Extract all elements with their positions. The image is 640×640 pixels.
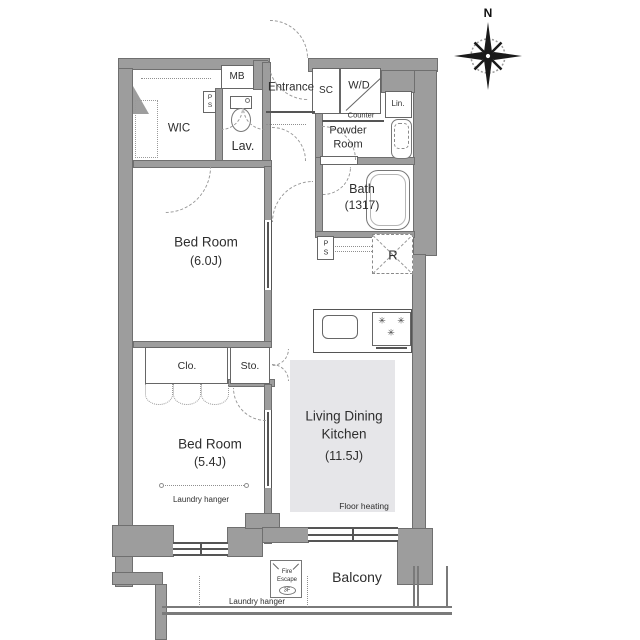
ldk-label: Kitchen — [321, 427, 366, 441]
washer-dryer-label: W/D — [348, 81, 369, 92]
wall — [227, 527, 263, 557]
stove-burner-icon: ✳ — [387, 329, 395, 338]
fire-escape-floor: 3F — [284, 588, 290, 594]
bath-label: Bath — [349, 183, 375, 196]
wall — [412, 254, 426, 530]
laundry-hanger-line — [162, 485, 248, 488]
wall — [413, 70, 437, 256]
balcony-slab-line — [162, 612, 452, 615]
accordion-door-arc — [201, 384, 229, 405]
pipe-shaft-letter: S — [208, 103, 212, 110]
wall — [381, 70, 415, 93]
bedroom2-label: Bed Room — [178, 437, 242, 451]
sliding-door-line — [267, 222, 269, 288]
wall — [397, 528, 433, 585]
counter-edge-line — [322, 120, 384, 122]
wic-label: WIC — [168, 123, 190, 135]
entry-door-arc — [270, 20, 308, 58]
storage-label: Sto. — [241, 361, 260, 372]
pipe-shaft-letter: P — [208, 95, 212, 102]
fire-escape-label: Fire — [282, 569, 292, 575]
pipe-shaft-lower: P S — [317, 236, 334, 260]
floor-heating-label: Floor heating — [339, 502, 389, 511]
accordion-door-arc — [173, 384, 201, 405]
compass-point-west — [454, 52, 488, 60]
compass-center — [485, 53, 490, 58]
balcony-label: Balcony — [332, 570, 382, 584]
counter-label: Counter — [348, 111, 375, 119]
pipe-shaft-upper: P S — [203, 91, 216, 113]
refrigerator-label: R — [388, 249, 397, 262]
entrance-step-line — [266, 111, 315, 113]
wic-closet-strip — [135, 100, 158, 158]
compass-north-letter: N — [484, 6, 493, 20]
bedroom1-size-label: (6.0J) — [190, 255, 222, 268]
stove-burner-icon: ✳ — [378, 317, 386, 326]
shoe-closet-label: SC — [319, 86, 333, 96]
stove-grill-line — [376, 347, 407, 349]
ldk-door-arc — [272, 181, 313, 222]
bedroom2-size-label: (5.4J) — [194, 456, 226, 469]
wall — [262, 527, 309, 543]
powder-room-label: Powder — [329, 126, 366, 137]
compass: N — [452, 4, 524, 94]
hatch-corner-tick — [273, 563, 279, 569]
laundry-hanger-pole — [307, 576, 308, 607]
compass-point-east — [488, 52, 522, 60]
hall-boundary-line — [266, 124, 306, 126]
fire-escape-hatch: Fire Escape 3F — [270, 560, 302, 598]
pipe-shaft-letter: P — [324, 241, 329, 248]
lavatory-door-arc — [272, 127, 306, 161]
balcony-partition-line — [413, 566, 415, 608]
entry-door-arc — [268, 60, 308, 100]
storage-door-arc — [272, 364, 289, 381]
accordion-door-arc — [145, 384, 173, 405]
bedroom1-door-arc — [165, 167, 211, 213]
balcony-laundry-hanger-label: Laundry hanger — [229, 598, 285, 606]
bedroom2-door-arc — [233, 388, 266, 421]
window-line — [200, 543, 202, 555]
vanity-mirror — [394, 123, 409, 149]
wall — [315, 157, 323, 237]
closet-label: Clo. — [178, 361, 197, 372]
wall — [112, 525, 174, 557]
ldk-label: Living Dining — [305, 409, 382, 423]
dashed-connector — [335, 246, 372, 252]
kitchen-sink — [322, 315, 358, 339]
powder-room-label: Room — [333, 140, 362, 151]
lavatory-label: Lav. — [232, 140, 255, 153]
stove-burner-icon: ✳ — [397, 317, 405, 326]
laundry-hanger-label: Laundry hanger — [173, 496, 229, 504]
wall — [118, 68, 133, 528]
bedroom1-label: Bed Room — [174, 235, 238, 249]
window-line — [352, 528, 354, 541]
floor-plan: MB SC W/D Counter Lin. P S P S R ✳ ✳ ✳ C… — [0, 0, 640, 640]
balcony-partition-line — [417, 566, 419, 608]
laundry-hanger-end — [244, 483, 249, 488]
linen-cabinet-label: Lin. — [392, 100, 405, 108]
sliding-door-line — [267, 412, 269, 486]
toilet-button — [245, 98, 250, 103]
ldk-size-label: (11.5J) — [325, 450, 363, 463]
balcony-rail-line — [446, 566, 448, 608]
meter-box-label: MB — [230, 72, 245, 82]
bath-size-label: (1317) — [345, 199, 380, 211]
bath-door-arc — [323, 167, 351, 195]
entrance-label: Entrance — [268, 82, 314, 94]
laundry-hanger-pole — [199, 576, 200, 607]
hatch-corner-tick — [293, 563, 299, 569]
laundry-hanger-end — [159, 483, 164, 488]
wic-hanger-pipe — [141, 78, 211, 81]
fire-escape-label: Escape — [277, 577, 297, 583]
pipe-shaft-letter: S — [324, 250, 329, 257]
